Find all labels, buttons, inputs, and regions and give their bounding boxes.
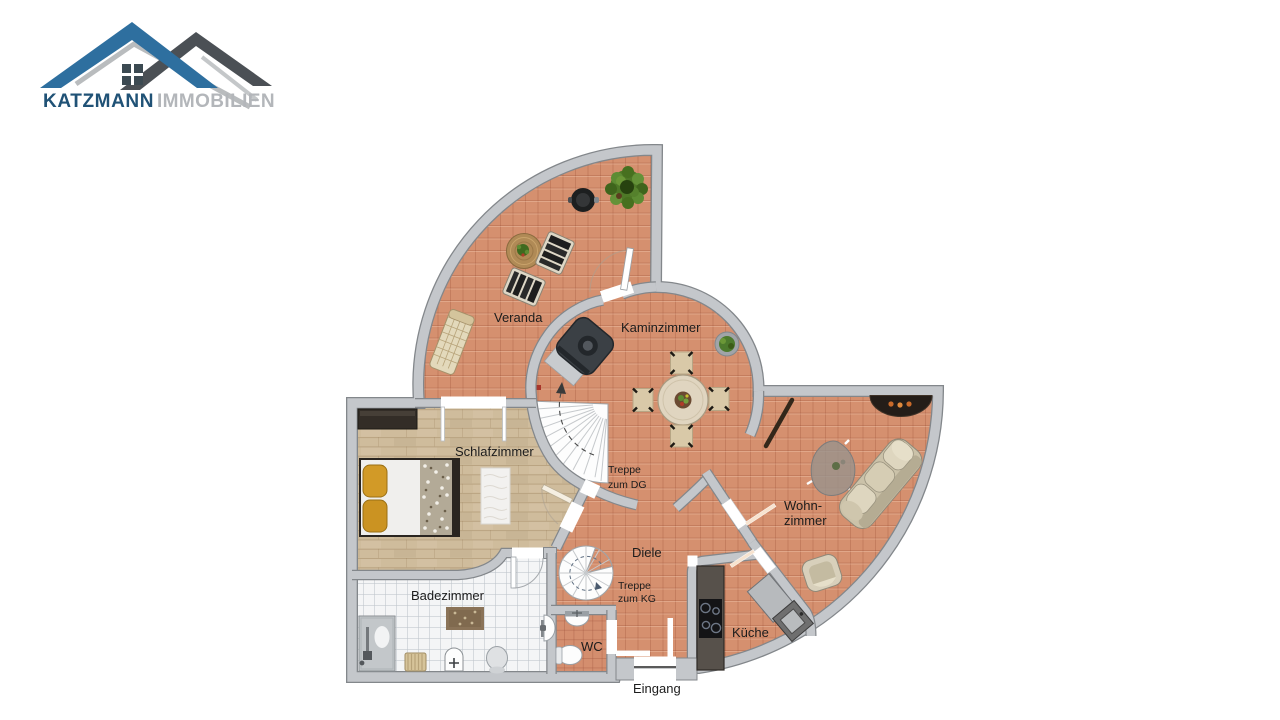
svg-text:zimmer: zimmer: [784, 513, 827, 528]
svg-text:IMMOBILIEN: IMMOBILIEN: [157, 91, 275, 112]
svg-text:WC: WC: [581, 639, 603, 654]
svg-text:zum KG: zum KG: [618, 593, 656, 605]
svg-text:Treppe: Treppe: [608, 464, 641, 476]
svg-text:zum DG: zum DG: [608, 479, 647, 491]
svg-text:KATZMANN: KATZMANN: [43, 91, 154, 112]
svg-text:Treppe: Treppe: [618, 580, 651, 592]
svg-text:Kaminzimmer: Kaminzimmer: [621, 320, 701, 335]
svg-text:Eingang: Eingang: [633, 681, 681, 696]
svg-text:Küche: Küche: [732, 625, 769, 640]
svg-text:Wohn-: Wohn-: [784, 498, 822, 513]
svg-text:Badezimmer: Badezimmer: [411, 588, 485, 603]
svg-text:Diele: Diele: [632, 545, 662, 560]
svg-text:Schlafzimmer: Schlafzimmer: [455, 444, 534, 459]
svg-text:Veranda: Veranda: [494, 310, 543, 325]
